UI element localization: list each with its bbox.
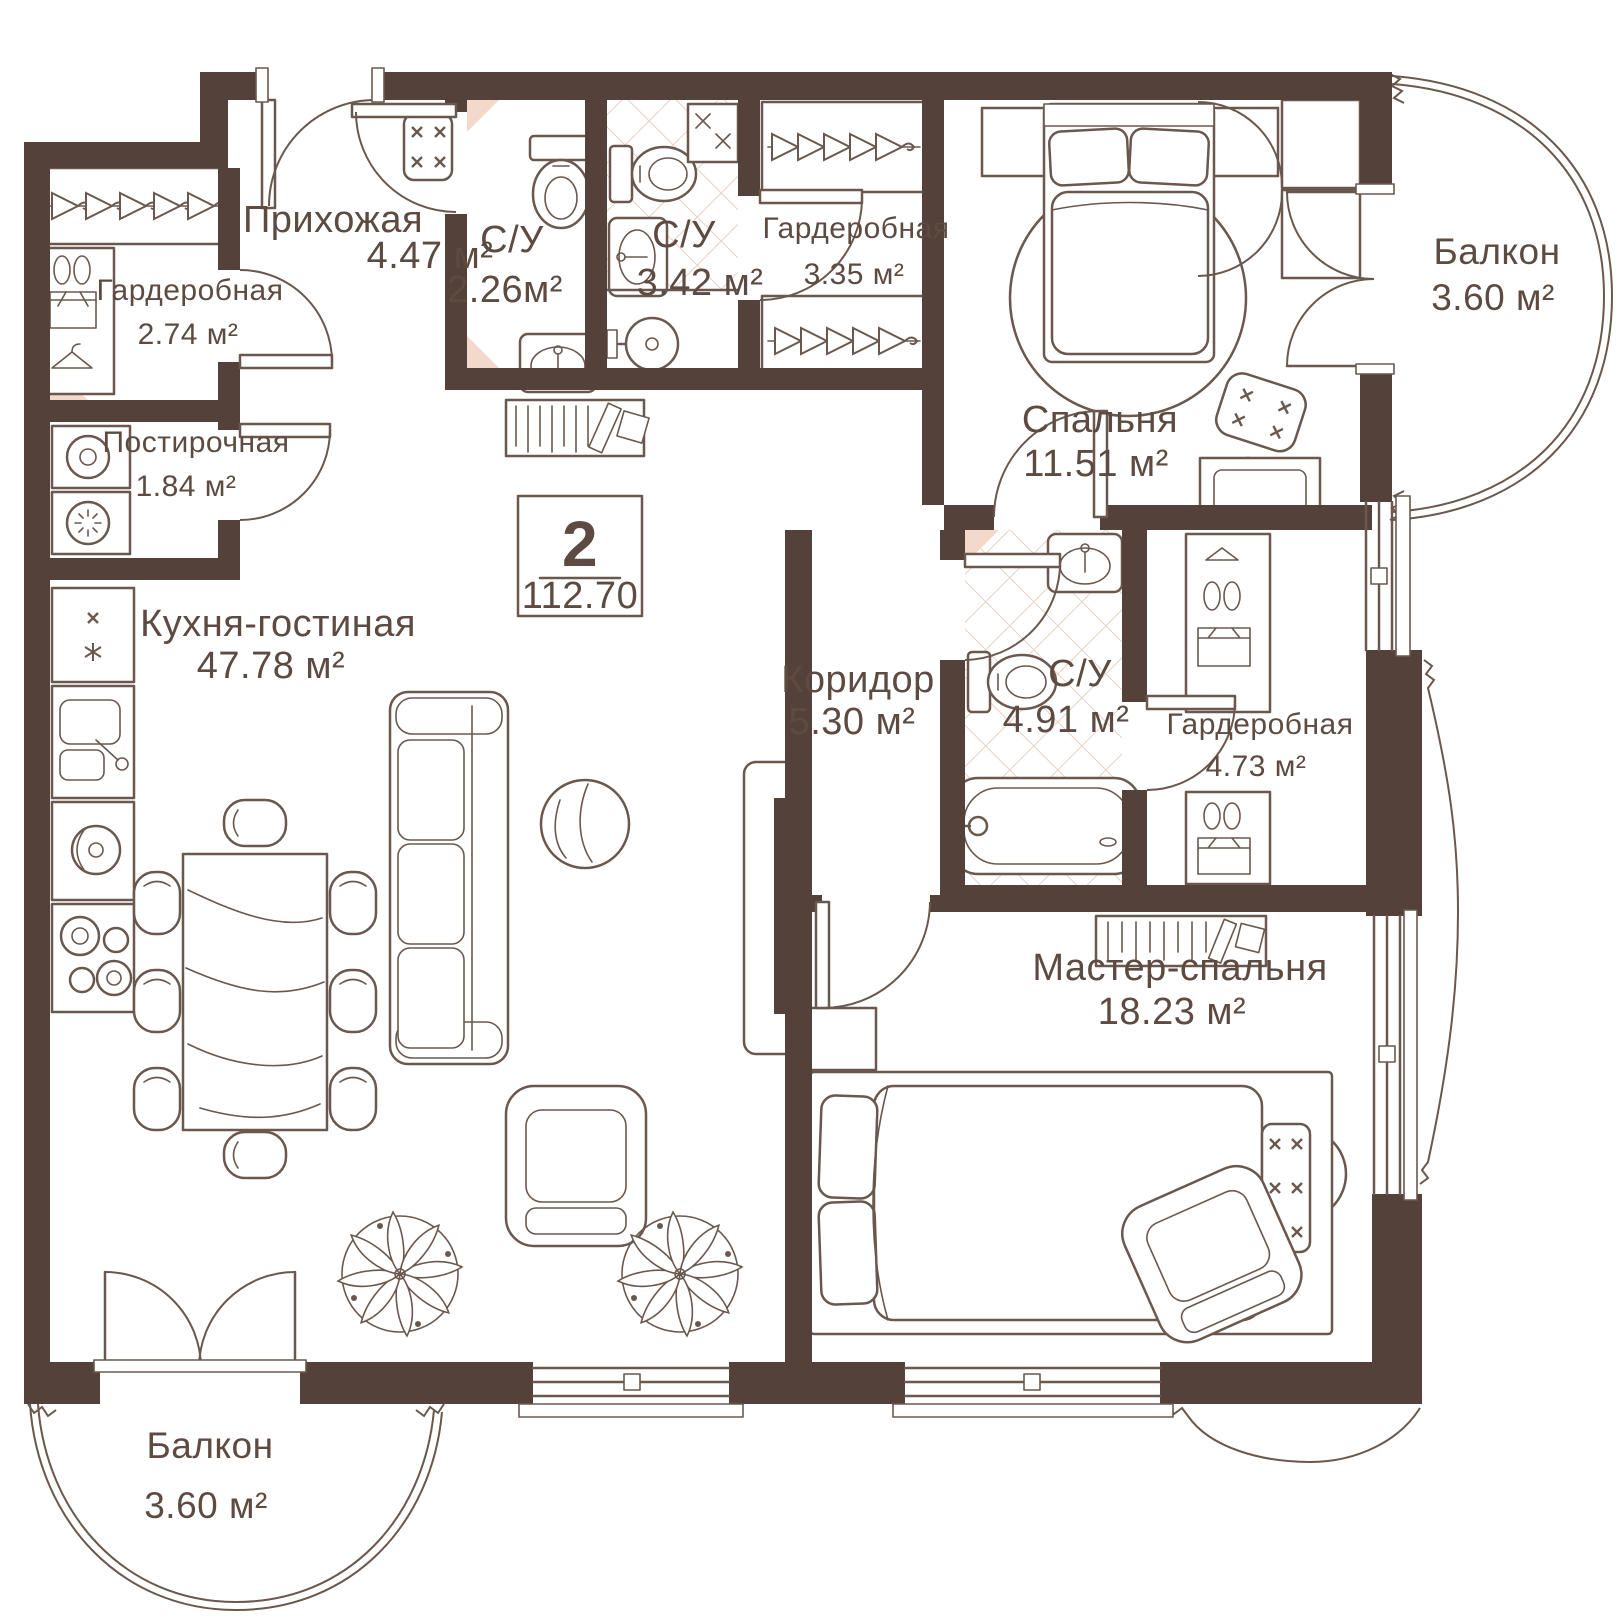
room-area-balkon-top: 3.60 м² — [1431, 277, 1555, 318]
room-name-su-491: С/У — [1048, 653, 1112, 695]
cooktop-icon — [52, 904, 134, 1012]
armchair — [506, 1086, 646, 1246]
toilet-su342 — [610, 146, 696, 202]
shoe-cabinet — [506, 400, 649, 456]
fridge-icon — [52, 588, 134, 682]
wardrobe-shelf-unit — [40, 248, 114, 394]
badge-rooms-count: 2 — [562, 508, 598, 580]
sofa — [390, 692, 508, 1064]
apartment-badge: 2 112.70 — [518, 496, 642, 617]
room-area-su-342: 3.42 м² — [637, 262, 764, 304]
closet-473-top — [1186, 534, 1270, 712]
entry-bench — [404, 114, 452, 180]
room-area-spalnya: 11.51 м² — [1023, 443, 1169, 485]
room-area-garderobnaya-274: 2.74 м² — [138, 318, 239, 351]
room-name-su-226: С/У — [480, 219, 544, 261]
room-name-su-342: С/У — [652, 214, 716, 256]
dryer-icon — [52, 492, 130, 554]
room-name-balkon-bottom: Балкон — [146, 1425, 273, 1466]
room-area-kuhnya-gostinaya: 47.78 м² — [197, 645, 345, 687]
room-name-balkon-top: Балкон — [1433, 231, 1560, 272]
wardrobe-hanger-rail — [40, 168, 226, 244]
room-area-su-491: 4.91 м² — [1003, 699, 1130, 741]
room-area-koridor: 5.30 м² — [789, 701, 916, 743]
room-name-garderobnaya-335: Гардеробная — [763, 212, 950, 245]
room-area-su-226: 2.26м² — [447, 269, 563, 311]
room-area-balkon-bottom: 3.60 м² — [144, 1485, 268, 1526]
closet-473-bottom — [1186, 792, 1270, 884]
toilet-su226 — [530, 136, 592, 228]
room-name-garderobnaya-473: Гардеробная — [1167, 708, 1354, 741]
room-area-garderobnaya-335: 3.35 м² — [804, 258, 905, 291]
bedroom-pouf — [1212, 369, 1310, 455]
oven-icon — [52, 802, 134, 900]
room-area-postirochnaya: 1.84 м² — [136, 470, 237, 503]
floor-plan: 2 112.70 Прихожая4.47 м²С/У2.26м²С/У3.42… — [0, 0, 1620, 1620]
badge-total-area: 112.70 — [522, 575, 638, 617]
room-area-master-spalnya: 18.23 м² — [1098, 991, 1246, 1033]
shower-tray — [688, 104, 738, 162]
room-name-kuhnya-gostinaya: Кухня-гостиная — [140, 603, 416, 645]
room-name-garderobnaya-274: Гардеробная — [97, 274, 284, 307]
dining-table — [183, 854, 327, 1130]
room-area-garderobnaya-473: 4.73 м² — [1206, 750, 1307, 783]
kitchen-sink — [52, 686, 134, 798]
coffee-table — [541, 780, 629, 868]
bathtub — [952, 778, 1140, 874]
room-name-postirochnaya: Постирочная — [102, 426, 289, 459]
room-name-master-spalnya: Мастер-спальня — [1032, 947, 1327, 989]
room-name-spalnya: Спальня — [1022, 399, 1178, 441]
floor-plan-canvas: 2 112.70 Прихожая4.47 м²С/У2.26м²С/У3.42… — [0, 0, 1620, 1620]
bedroom-bed — [982, 104, 1278, 362]
room-name-koridor: Коридор — [781, 659, 935, 701]
